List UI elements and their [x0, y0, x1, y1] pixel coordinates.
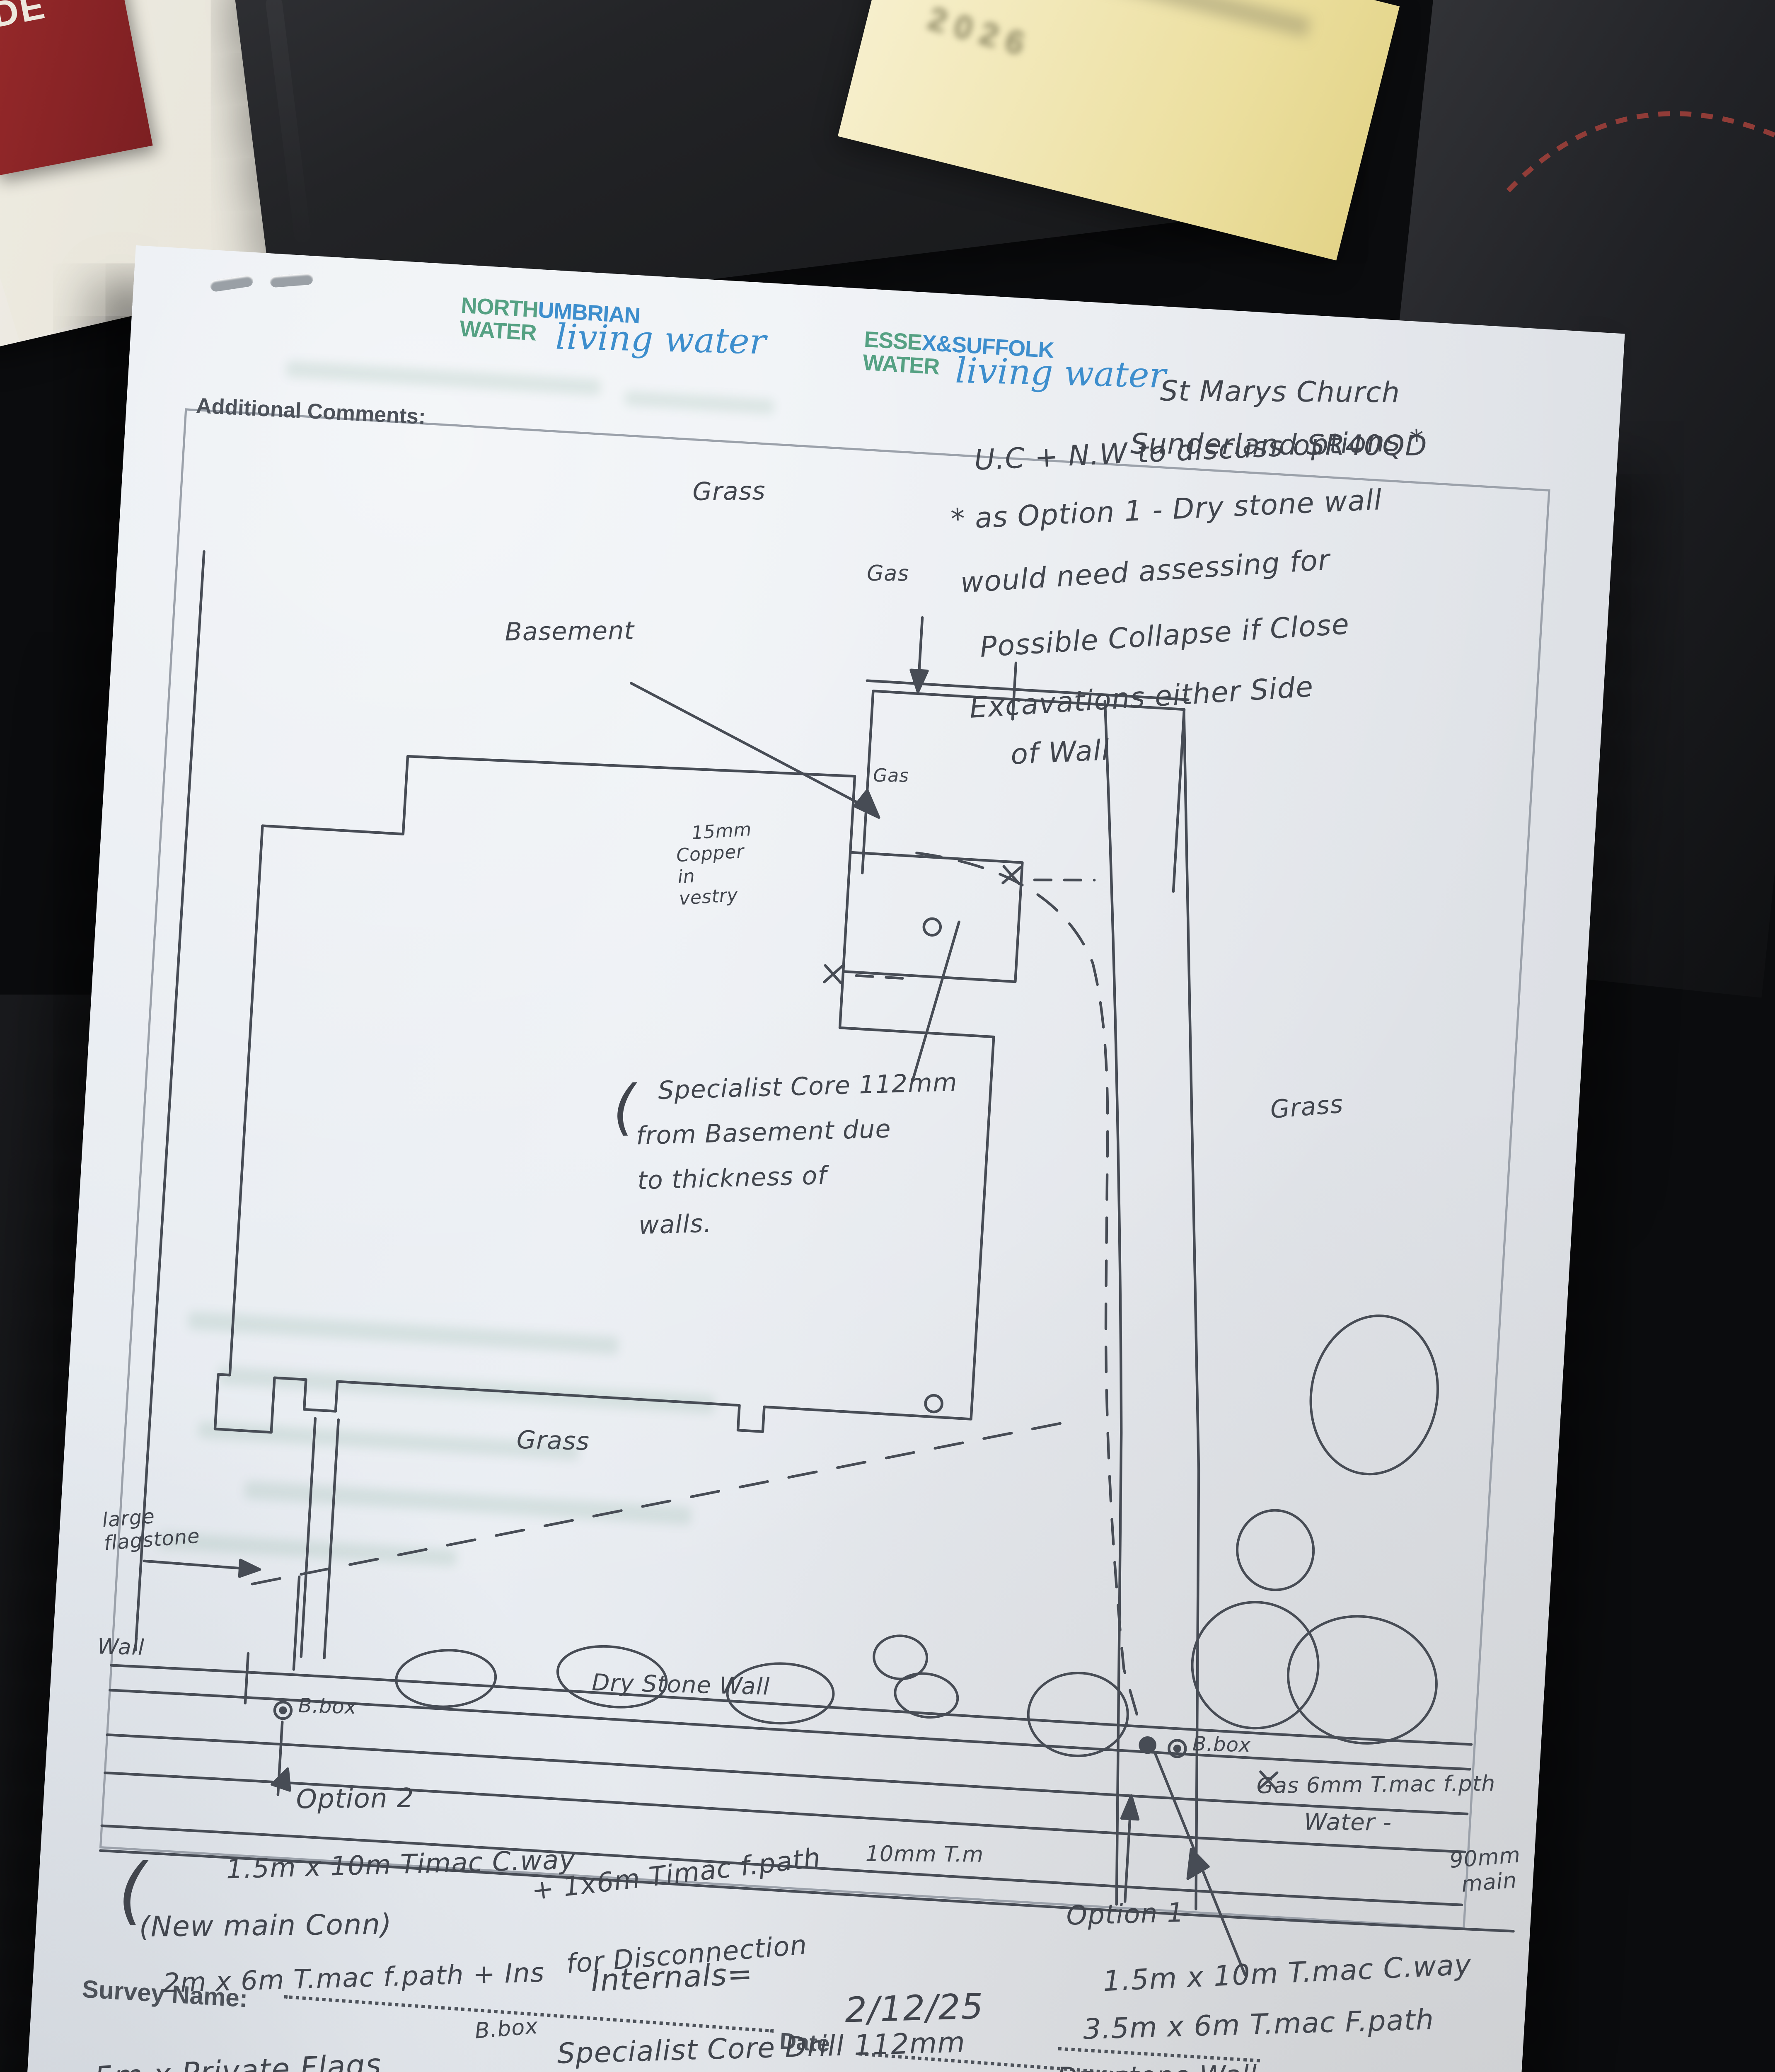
grass-label-lawn: Grass	[516, 1425, 590, 1457]
x-mark-vestry-left	[824, 966, 842, 983]
gas-arrowhead	[909, 670, 927, 692]
option1-line: Dry stone Wall -	[1057, 2059, 1277, 2072]
service-arrowhead	[1188, 1849, 1209, 1880]
yellow-card-blur-text	[1065, 0, 1311, 38]
marker-circle-2	[925, 1395, 942, 1412]
core-note-leader	[913, 920, 959, 1081]
proposed-route-dashed	[866, 853, 1191, 1726]
flagstone-arrow-line	[144, 1561, 244, 1569]
option2-tag: Option 2	[296, 1782, 414, 1815]
gas-arrow-line	[919, 617, 922, 674]
wall-label: Wall	[97, 1635, 145, 1661]
core-note-paren: (	[612, 1075, 638, 1143]
bbox-right-label: B.box	[1192, 1732, 1251, 1757]
gas-label-top: Gas	[867, 562, 909, 588]
core-note-line: Specialist Core 112mm	[634, 1061, 958, 1115]
logo-script: living water	[955, 354, 1166, 394]
flagstone-note: large flagstone	[101, 1501, 201, 1555]
note-line: of Wall	[1010, 735, 1110, 772]
internals-title: Internals=	[590, 1957, 754, 1999]
flagstone-arrowhead	[239, 1560, 260, 1578]
seat-stitching	[1492, 33, 1775, 298]
bbox-left-label: B.box	[298, 1694, 357, 1719]
grass-label-top: Grass	[692, 476, 766, 507]
date-value: 2/12/25	[844, 1987, 984, 2030]
basement-label: Basement	[505, 616, 634, 647]
lawn-route-dashed	[252, 1372, 1076, 1632]
gas-label-vestry: Gas	[873, 765, 909, 787]
option1-tag: Option 1	[1066, 1897, 1185, 1932]
grass-label-right: Grass	[1269, 1089, 1345, 1125]
core-note-line: walls.	[638, 1195, 962, 1249]
northumbrian-water-logo: NORTHUMBRIAN WATER living water	[459, 295, 641, 350]
option2-line: (New main Conn)	[139, 1909, 392, 1945]
red-book-label: DE	[0, 0, 50, 37]
gas-main-label: Gas 6mm T.mac f.pth	[1256, 1772, 1495, 1800]
option2-line: B.box	[474, 2015, 539, 2045]
wall-tick	[245, 1653, 248, 1703]
site-name: St Marys Church	[1160, 375, 1400, 410]
dry-stone-wall-label: Dry Stone Wall	[591, 1670, 770, 1701]
survey-sheet: Additional Comments: Survey Name: Date 2…	[5, 245, 1625, 2072]
marker-circle-1	[924, 918, 941, 936]
path-to-gate	[301, 1418, 339, 1658]
bbox-right-dot	[1140, 1737, 1156, 1753]
copper-note: 15mm Copper in vestry	[675, 819, 757, 910]
main-size-label: 90mm main	[1449, 1844, 1524, 1899]
logo-script: living water	[555, 320, 767, 360]
option2-arrowhead	[272, 1768, 291, 1791]
photo-of-survey-sheet: DE 2026	[0, 0, 1775, 2072]
water-label: Water -	[1304, 1810, 1392, 1837]
tmac-note: 10mm T.m	[866, 1843, 984, 1869]
service-tick-left	[294, 1577, 299, 1670]
core-note: Specialist Core 112mm from Basement due …	[634, 1061, 962, 1249]
vestry-wall	[843, 852, 850, 971]
basement-arrowhead	[854, 789, 880, 817]
basement-leader	[624, 683, 879, 811]
yellow-card-number: 2026	[923, 1, 1036, 67]
bush-outlines	[391, 1252, 1467, 1781]
option1-arrowhead	[1122, 1795, 1139, 1819]
